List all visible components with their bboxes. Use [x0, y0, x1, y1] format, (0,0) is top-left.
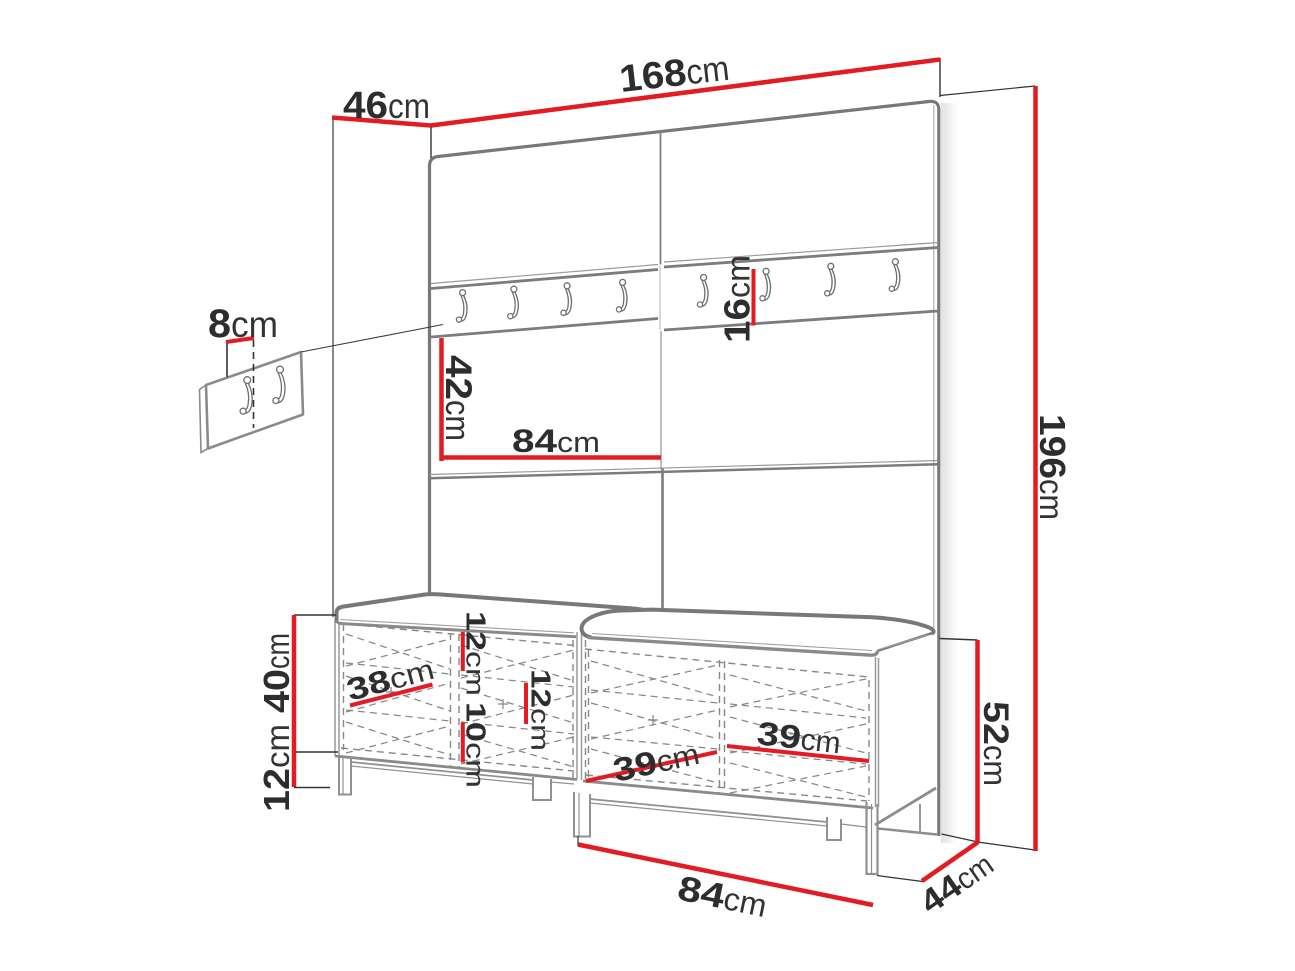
svg-text:12cm: 12cm — [461, 611, 492, 696]
svg-text:8cm: 8cm — [208, 302, 278, 346]
svg-text:84cm: 84cm — [512, 423, 600, 459]
svg-text:10cm: 10cm — [461, 702, 492, 788]
svg-text:16cm: 16cm — [717, 255, 758, 343]
svg-text:46cm: 46cm — [343, 85, 430, 127]
svg-text:12cm: 12cm — [526, 669, 557, 751]
svg-text:42cm: 42cm — [438, 355, 479, 441]
svg-text:40cm: 40cm — [256, 633, 297, 713]
svg-text:196cm: 196cm — [1032, 414, 1073, 520]
svg-text:52cm: 52cm — [976, 701, 1015, 786]
svg-text:12cm: 12cm — [256, 724, 297, 812]
